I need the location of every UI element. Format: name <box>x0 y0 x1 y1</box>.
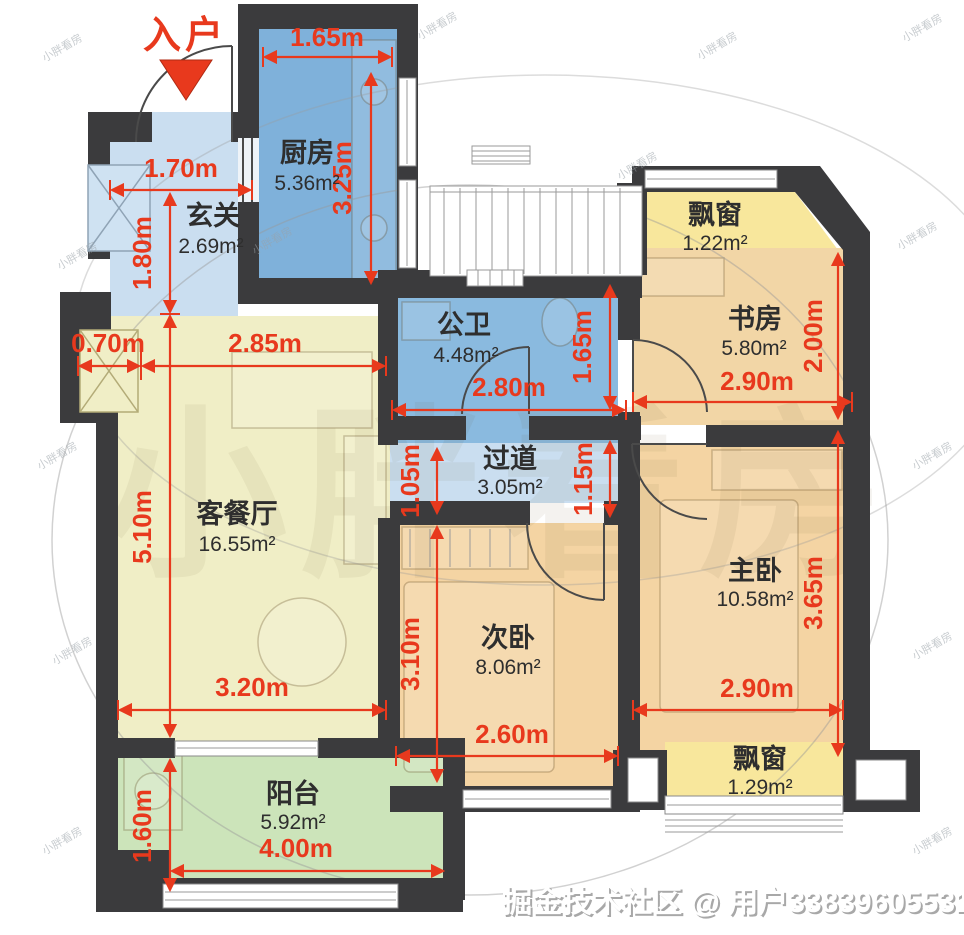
stairwell <box>430 146 642 286</box>
master-bay-name: 飘窗 <box>733 743 787 774</box>
study-bay-area: 1.22m² <box>682 232 747 255</box>
living-name: 客餐厅 <box>197 498 278 529</box>
bathroom-area: 4.48m² <box>433 344 498 367</box>
svg-text:3.65m: 3.65m <box>798 556 828 630</box>
stamp: 小胖看房 <box>40 30 85 64</box>
stamp: 小胖看房 <box>40 823 85 857</box>
kitchen-name: 厨房 <box>280 138 334 168</box>
svg-text:3.20m: 3.20m <box>215 672 289 702</box>
stamp: 小胖看房 <box>50 633 95 667</box>
floor-plan-page: 小胖看房 <box>0 0 964 935</box>
svg-text:5.10m: 5.10m <box>127 490 157 564</box>
svg-text:2.60m: 2.60m <box>475 719 549 749</box>
stamp: 小胖看房 <box>910 823 955 857</box>
svg-text:0.70m: 0.70m <box>71 328 145 358</box>
living-area: 16.55m² <box>198 533 275 556</box>
master-name: 主卧 <box>728 556 782 586</box>
bathroom-name: 公卫 <box>437 310 491 340</box>
study-bay-name: 飘窗 <box>688 199 742 230</box>
study-name: 书房 <box>728 304 782 334</box>
study-area: 5.80m² <box>721 337 786 360</box>
svg-text:1.65m: 1.65m <box>567 310 597 384</box>
stamp: 小胖看房 <box>895 218 940 252</box>
svg-text:2.00m: 2.00m <box>798 299 828 373</box>
master-bay-area: 1.29m² <box>727 776 792 799</box>
svg-text:2.85m: 2.85m <box>228 328 302 358</box>
svg-text:4.00m: 4.00m <box>259 833 333 863</box>
svg-text:2.90m: 2.90m <box>720 366 794 396</box>
secondary-area: 8.06m² <box>475 656 540 679</box>
secondary-name: 次卧 <box>481 623 535 653</box>
svg-text:2.80m: 2.80m <box>472 372 546 402</box>
entrance-label: 入户 <box>143 15 227 57</box>
kitchen-area: 5.36m² <box>274 172 339 195</box>
stamp: 小胖看房 <box>910 438 955 472</box>
entrance-arrow-icon <box>160 60 212 100</box>
balcony-name: 阳台 <box>266 778 320 809</box>
entry-recess <box>152 112 232 146</box>
hallway-name: 过道 <box>483 443 537 474</box>
stamp: 小胖看房 <box>910 628 955 662</box>
credit-text: 掘金技术社区 @ 用户33839605531 <box>502 885 964 919</box>
foyer-name: 玄关 <box>186 200 240 231</box>
hallway-area: 3.05m² <box>477 476 542 499</box>
svg-text:1.65m: 1.65m <box>290 22 364 52</box>
svg-text:1.80m: 1.80m <box>127 216 157 290</box>
kitchen-slider <box>238 138 259 202</box>
floor-plan: 小胖看房 <box>0 0 964 935</box>
stamp: 小胖看房 <box>35 438 80 472</box>
stamp: 小胖看房 <box>900 10 945 44</box>
svg-text:3.10m: 3.10m <box>395 617 425 691</box>
svg-text:1.70m: 1.70m <box>144 153 218 183</box>
stamp: 小胖看房 <box>695 28 740 62</box>
svg-text:1.05m: 1.05m <box>395 444 425 518</box>
balcony-area: 5.92m² <box>260 811 325 834</box>
svg-text:1.15m: 1.15m <box>568 442 598 516</box>
svg-text:2.90m: 2.90m <box>720 673 794 703</box>
svg-text:1.60m: 1.60m <box>127 789 157 863</box>
stamp: 小胖看房 <box>415 8 460 42</box>
master-area: 10.58m² <box>716 588 793 611</box>
foyer-area: 2.69m² <box>178 235 243 258</box>
credit-watermark: 掘金技术社区 @ 用户33839605531 掘金技术社区 @ 用户338396… <box>502 885 964 921</box>
